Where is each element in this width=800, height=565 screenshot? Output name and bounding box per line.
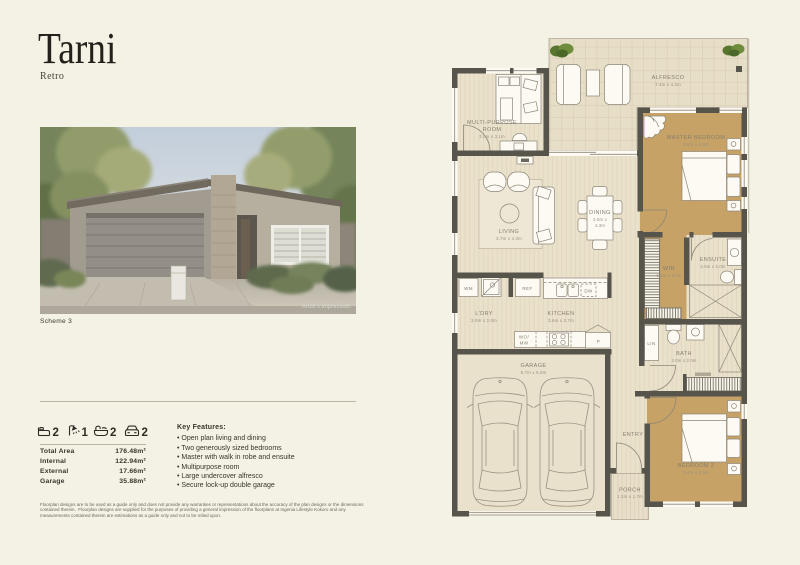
svg-text:P: P: [597, 339, 600, 344]
svg-text:2: 2: [110, 427, 116, 438]
svg-text:1: 1: [82, 427, 89, 438]
svg-text:MW: MW: [520, 341, 529, 346]
svg-text:LIN: LIN: [647, 341, 655, 346]
svg-text:3.6m x 4.0m: 3.6m x 4.0m: [683, 142, 709, 147]
svg-text:BEDROOM 2: BEDROOM 2: [678, 463, 715, 469]
svg-text:GARAGE: GARAGE: [521, 363, 547, 369]
svg-text:1.6m x 2.0m: 1.6m x 2.0m: [656, 273, 682, 278]
svg-text:3.6m x 2.7m: 3.6m x 2.7m: [548, 318, 574, 323]
svg-text:ENTRY: ENTRY: [623, 432, 644, 438]
svg-text:BATH: BATH: [676, 351, 692, 357]
svg-text:3.7m x 4.3m: 3.7m x 4.3m: [496, 236, 522, 241]
svg-text:3.4m x 3.5m: 3.4m x 3.5m: [683, 470, 709, 475]
svg-text:2: 2: [53, 427, 59, 438]
svg-text:2: 2: [142, 427, 148, 438]
svg-text:MULTI-PURPOSE: MULTI-PURPOSE: [467, 120, 517, 126]
svg-text:ALFRESCO: ALFRESCO: [652, 75, 685, 81]
svg-text:MASTER BEDROOM: MASTER BEDROOM: [667, 135, 725, 141]
svg-text:7.4m x 4.2m: 7.4m x 4.2m: [655, 82, 681, 87]
svg-text:ROOM: ROOM: [483, 127, 502, 133]
svg-text:4.3m: 4.3m: [595, 223, 606, 228]
svg-text:REF: REF: [522, 286, 532, 291]
svg-text:3.0m x 3.1m: 3.0m x 3.1m: [479, 134, 505, 139]
svg-text:1.3m x 1.7m: 1.3m x 1.7m: [617, 494, 643, 499]
svg-text:KITCHEN: KITCHEN: [548, 311, 575, 317]
svg-text:WO/: WO/: [519, 335, 530, 340]
svg-text:3.0m x 2.0m: 3.0m x 2.0m: [671, 358, 697, 363]
svg-text:LIVING: LIVING: [499, 229, 519, 235]
svg-text:WIR: WIR: [663, 266, 675, 272]
svg-text:DINING: DINING: [589, 210, 611, 216]
svg-text:DW: DW: [584, 289, 593, 294]
svg-text:L'DRY: L'DRY: [475, 311, 493, 317]
svg-text:2.0m x 2.0m: 2.0m x 2.0m: [471, 318, 497, 323]
svg-text:3.0m x: 3.0m x: [593, 217, 608, 222]
svg-text:2.5m x 2.0m: 2.5m x 2.0m: [700, 264, 726, 269]
svg-text:Artist's impression: Artist's impression: [302, 304, 351, 310]
svg-text:5.7m x 6.0m: 5.7m x 6.0m: [521, 370, 547, 375]
svg-text:ENSUITE: ENSUITE: [700, 257, 727, 263]
svg-text:WM: WM: [464, 286, 473, 291]
svg-text:PORCH: PORCH: [619, 488, 641, 494]
